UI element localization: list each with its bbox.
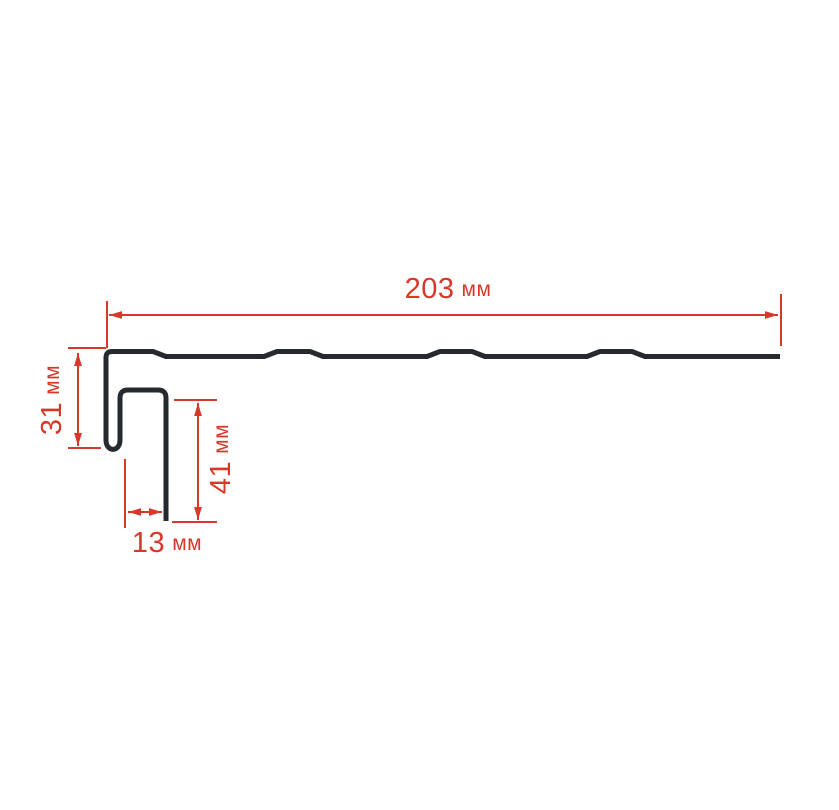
dimension-label-height-face: 41мм: [205, 424, 237, 494]
profile-path: [106, 352, 780, 522]
profile-dimension-diagram: 203мм 31мм 41мм 13мм: [0, 0, 839, 810]
profile-outline: [106, 352, 780, 522]
dimension-height-left: 31мм: [36, 348, 106, 448]
drawing-canvas: 203мм 31мм 41мм 13мм: [0, 0, 839, 810]
dimension-label-width-channel: 13мм: [132, 527, 202, 559]
dimension-height-face: 41мм: [172, 400, 237, 522]
dimension-label-width-total: 203мм: [405, 273, 492, 305]
dimension-annotations: 203мм 31мм 41мм 13мм: [36, 273, 781, 559]
dimension-label-height-left: 31мм: [36, 365, 68, 435]
dimension-width-total: 203мм: [107, 273, 781, 348]
